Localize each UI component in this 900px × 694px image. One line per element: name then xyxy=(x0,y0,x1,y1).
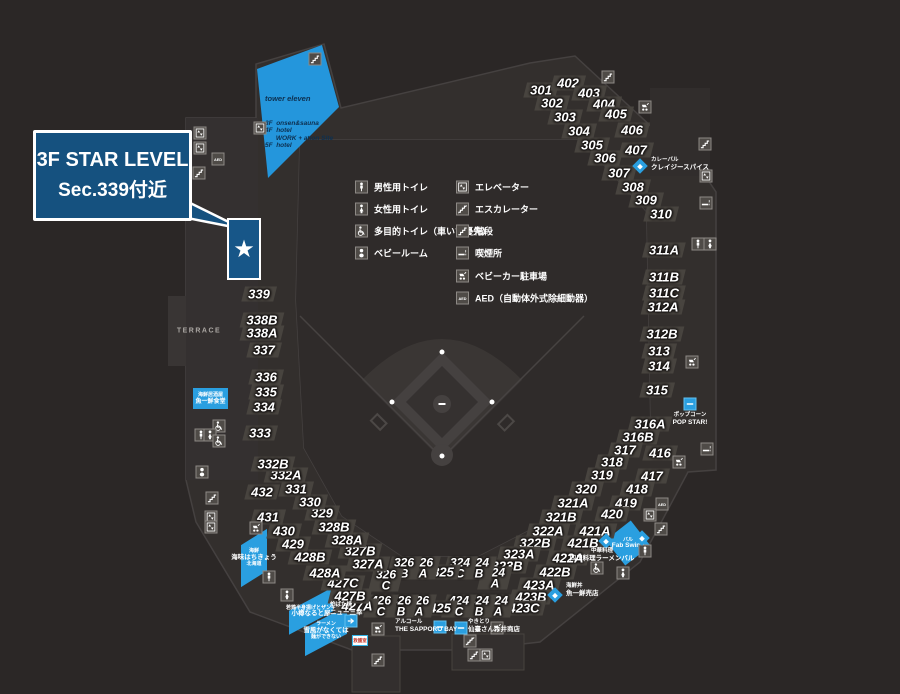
section-label-321A: 321A xyxy=(552,496,593,511)
first-base xyxy=(490,400,495,405)
shop-label: アルコールTHE SAPPORO BAY xyxy=(395,619,457,633)
stroller-icon xyxy=(372,623,385,636)
stairs-icon xyxy=(655,523,668,536)
home-plate xyxy=(440,454,445,459)
baby-icon xyxy=(355,247,368,260)
tower-eleven-title: tower eleven xyxy=(265,95,333,103)
svg-text:AED: AED xyxy=(214,158,222,162)
legend-label: 女性用トイレ xyxy=(374,203,428,216)
second-base xyxy=(440,350,445,355)
shop-label: やきとり仙臺さん今井商店 xyxy=(468,619,520,633)
tower-floor-line: WORK + ation Site xyxy=(265,135,333,143)
woman-icon xyxy=(704,238,717,251)
stroller-icon xyxy=(250,522,263,535)
section-label-310: 310 xyxy=(645,207,677,222)
map-background xyxy=(0,0,900,694)
section-label-302: 302 xyxy=(536,96,568,111)
section-label-328A: 328A xyxy=(326,533,367,548)
star-location-marker: ★ xyxy=(227,218,261,280)
section-label-429: 429 xyxy=(277,537,309,552)
elevator-icon xyxy=(644,509,657,522)
section-label-406: 406 xyxy=(616,123,648,138)
elevator-icon xyxy=(456,181,469,194)
legend-label: ベビールーム xyxy=(374,247,428,260)
aed-icon: AED xyxy=(456,292,469,305)
section-label-335: 335 xyxy=(250,385,282,400)
section-label-337: 337 xyxy=(248,343,280,358)
shop-label: 海鮮丼魚一鮮売店 xyxy=(566,583,599,597)
legend-row-left-3: ベビールーム xyxy=(355,247,428,260)
section-label-309: 309 xyxy=(630,193,662,208)
section-label-312A: 312A xyxy=(642,300,683,315)
section-label-326C: 326C xyxy=(371,569,401,592)
shop-area: ラーメン雪風がなくては麺ができない xyxy=(305,617,347,645)
smoking-icon xyxy=(700,197,713,210)
callout-level-label: 3F STAR LEVEL xyxy=(37,149,189,172)
man-icon xyxy=(355,181,368,194)
legend-row-right-1: エスカレーター xyxy=(456,203,538,216)
section-label-314: 314 xyxy=(643,359,675,374)
tower-floor-line: 4F hotel xyxy=(265,127,333,135)
tower-eleven-text: tower eleven 3F onsen&sauna4F hotel WORK… xyxy=(265,80,333,165)
legend-row-left-1: 女性用トイレ xyxy=(355,203,428,216)
man-icon xyxy=(263,571,276,584)
baby-icon xyxy=(196,466,209,479)
section-label-333: 333 xyxy=(244,426,276,441)
first-aid-box: 救護室 xyxy=(352,635,368,646)
svg-text:AED: AED xyxy=(458,297,466,301)
stroller-icon xyxy=(639,101,652,114)
section-label-304: 304 xyxy=(563,124,595,139)
section-label-430: 430 xyxy=(268,524,300,539)
section-label-315: 315 xyxy=(641,383,673,398)
pitcher-rubber xyxy=(439,403,446,405)
stroller-icon xyxy=(686,356,699,369)
section-label-405: 405 xyxy=(600,107,632,122)
stroller-icon xyxy=(673,456,686,469)
tower-floor-line: 3F onsen&sauna xyxy=(265,120,333,128)
section-label-432: 432 xyxy=(246,485,278,500)
section-label-416: 416 xyxy=(644,446,676,461)
elevator-icon xyxy=(700,170,713,183)
section-label-320: 320 xyxy=(570,482,602,497)
elevator-icon xyxy=(194,127,207,140)
legend-row-left-0: 男性用トイレ xyxy=(355,181,428,194)
section-label-328B: 328B xyxy=(313,520,354,535)
section-label-334: 334 xyxy=(248,400,280,415)
section-label-339: 339 xyxy=(243,287,275,302)
stairs-icon xyxy=(372,654,385,667)
woman-icon xyxy=(355,203,368,216)
section-label-428B: 428B xyxy=(289,550,330,565)
section-label-332B: 332B xyxy=(252,457,293,472)
escalator-icon xyxy=(456,203,469,216)
smoking-icon xyxy=(456,247,469,260)
legend-label: エレベーター xyxy=(475,181,529,194)
smoking-icon xyxy=(701,443,714,456)
section-label-311C: 311C xyxy=(644,286,684,301)
section-label-319: 319 xyxy=(586,468,618,483)
legend-label: エスカレーター xyxy=(475,203,538,216)
section-label-311B: 311B xyxy=(644,270,684,285)
section-label-306: 306 xyxy=(589,151,621,166)
legend-row-right-5: AEDAED（自動体外式除細動器） xyxy=(456,292,593,305)
legend-row-right-0: エレベーター xyxy=(456,181,529,194)
elevator-icon xyxy=(194,142,207,155)
section-label-313: 313 xyxy=(643,344,675,359)
section-label-331: 331 xyxy=(280,482,312,497)
shop-box: 海鮮居酒屋魚一鮮食堂 xyxy=(193,388,228,409)
aed-icon: AED xyxy=(212,153,225,166)
terrace-label: TERRACE xyxy=(177,328,221,335)
shop-area-label: 海鮮海味はちきょう北海道 xyxy=(231,548,277,568)
shop-label: 中華料理四川料理ラーメンバル xyxy=(570,548,635,562)
legend-label: AED（自動体外式除細動器） xyxy=(475,292,593,305)
section-label-418: 418 xyxy=(621,482,653,497)
section-label-321B: 321B xyxy=(540,510,581,525)
arrow-icon xyxy=(345,615,358,628)
section-label-428A: 428A xyxy=(304,566,345,581)
tower-eleven-floors: 3F onsen&sauna4F hotel WORK + ation Site… xyxy=(265,120,333,150)
stairs-icon xyxy=(456,225,469,238)
legend-label: ベビーカー駐車場 xyxy=(475,270,547,283)
section-label-338B: 338B xyxy=(241,313,282,328)
legend-row-right-4: ベビーカー駐車場 xyxy=(456,270,547,283)
wheelchair-icon xyxy=(591,562,604,575)
section-label-303: 303 xyxy=(549,110,581,125)
section-label-407: 407 xyxy=(620,143,652,158)
section-label-336: 336 xyxy=(250,370,282,385)
shop-marker-box xyxy=(684,398,697,411)
legend-row-right-3: 喫煙所 xyxy=(456,247,502,260)
legend-label: 男性用トイレ xyxy=(374,181,428,194)
stairs-icon xyxy=(206,492,219,505)
section-label-330: 330 xyxy=(294,495,326,510)
stairs-icon xyxy=(309,53,322,66)
callout-section-label: Sec.339付近 xyxy=(58,175,167,202)
stairs-icon xyxy=(602,71,615,84)
aed-icon: AED xyxy=(656,498,669,511)
stairs-icon xyxy=(193,167,206,180)
elevator-icon xyxy=(254,122,267,135)
woman-icon xyxy=(281,589,294,602)
elevator-icon xyxy=(205,521,218,534)
shop-label: ポップコーンPOP STAR! xyxy=(673,412,708,426)
svg-text:AED: AED xyxy=(658,503,666,507)
third-base xyxy=(390,400,395,405)
stadium-map: ★ 3F STAR LEVEL Sec.339付近 tower eleven 3… xyxy=(0,0,900,694)
woman-icon xyxy=(617,567,630,580)
legend-label: 階段 xyxy=(475,225,493,238)
section-label-311A: 311A xyxy=(644,243,684,258)
shop-label: 炉ばた焼ニュー三幸 xyxy=(330,602,363,616)
section-label-420: 420 xyxy=(596,507,628,522)
wheelchair-icon xyxy=(213,435,226,448)
tower-floor-line: 5F hotel xyxy=(265,142,333,150)
man-icon xyxy=(639,545,652,558)
shop-area-label: ラーメン雪風がなくては麺ができない xyxy=(303,621,348,641)
section-label-307: 307 xyxy=(603,166,635,181)
legend-label: 喫煙所 xyxy=(475,247,502,260)
elevator-icon xyxy=(480,649,493,662)
wheelchair-icon xyxy=(355,225,368,238)
stairs-icon xyxy=(699,138,712,151)
section-label-312B: 312B xyxy=(641,327,682,342)
escalator-icon xyxy=(464,635,477,648)
section-label-327A: 327A xyxy=(347,557,388,572)
section-label-338A: 338A xyxy=(241,326,282,341)
stroller-icon xyxy=(456,270,469,283)
location-callout: 3F STAR LEVEL Sec.339付近 xyxy=(33,130,192,221)
shop-label: カレーバルクレイジースパイス xyxy=(651,157,709,171)
legend-row-right-2: 階段 xyxy=(456,225,493,238)
